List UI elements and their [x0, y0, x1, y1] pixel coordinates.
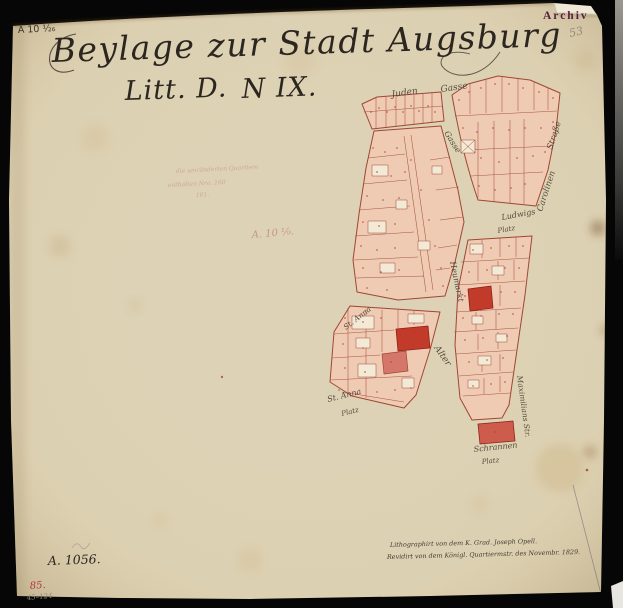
faint-red-note-line3: 161. — [196, 191, 210, 199]
highlighted-parcel-east — [468, 286, 493, 311]
corner-shelfmark: A 10 ¹⁄₂₆ — [18, 23, 56, 36]
highlighted-parcel-light-red — [382, 351, 408, 374]
city-block-west — [353, 126, 464, 300]
bottom-ink-shelfmark: A. 1056. — [47, 551, 101, 568]
archival-map-scan: Juden Gasse Gasse Straße Carolinen Ludwi… — [0, 0, 623, 608]
church-building — [461, 140, 475, 153]
page-title-line2-litt: Litt. D. — [123, 72, 228, 107]
archiv-stamp: Archiv — [543, 10, 589, 22]
bottom-red-number: 85. — [29, 580, 46, 592]
highlighted-parcel-dark-red — [396, 326, 430, 351]
page-title-line2-number: N IX. — [240, 71, 318, 105]
